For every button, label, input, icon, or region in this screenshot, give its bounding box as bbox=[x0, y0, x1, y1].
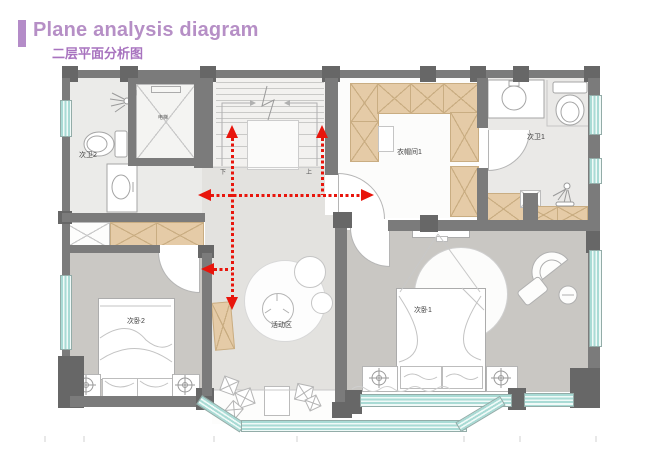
window-left-2 bbox=[60, 275, 72, 350]
window-left-1 bbox=[60, 100, 72, 137]
stair-direction-arrow-right bbox=[250, 100, 256, 106]
wall-column bbox=[420, 66, 436, 82]
flow-line-main-vertical bbox=[231, 138, 234, 298]
wall-bedroom2-bottom bbox=[70, 396, 200, 407]
dimension-ticks bbox=[45, 436, 596, 442]
title-accent-bar bbox=[18, 20, 26, 47]
plant-icons bbox=[220, 376, 321, 419]
wall-hall-bedroom1 bbox=[335, 228, 347, 412]
room-label-activity: 活动区 bbox=[271, 320, 292, 330]
toilet-icon-bath1 bbox=[553, 82, 587, 125]
sink-icon-bath2 bbox=[107, 164, 137, 212]
wall-closet1-bath1-lower bbox=[477, 168, 488, 222]
bedroom1-bed-drapes bbox=[399, 288, 484, 380]
flow-line-branch bbox=[214, 268, 232, 271]
wall-bedroom2-top bbox=[62, 245, 160, 253]
bay-window-bottom bbox=[241, 420, 467, 432]
room-label-bath1: 次卫1 bbox=[527, 132, 545, 142]
wall-corner-br bbox=[570, 368, 600, 408]
room-label-bath2: 次卫2 bbox=[79, 150, 97, 160]
flow-line-horizontal bbox=[211, 194, 361, 197]
room-label-b edroom2: 次卧2 bbox=[127, 316, 145, 326]
window-right-2 bbox=[589, 158, 602, 184]
page-subtitle: 二层平面分析图 bbox=[52, 43, 143, 62]
flow-arrowhead-up-left bbox=[226, 125, 238, 138]
wall-closet1-bath1-upper bbox=[477, 78, 488, 128]
wall-column bbox=[420, 215, 438, 232]
stair-break-line bbox=[262, 86, 274, 120]
stair-label-down: 下 bbox=[220, 167, 226, 176]
room-label-closet1: 衣帽间1 bbox=[397, 147, 422, 157]
wall-closet1-hinge-block bbox=[333, 212, 352, 228]
flow-arrowhead-down bbox=[226, 297, 238, 310]
shower-icon-bath1 bbox=[553, 183, 574, 206]
stair-label-up: 上 bbox=[306, 167, 312, 176]
wall-bath2-bottom bbox=[62, 213, 205, 222]
wall-elevator-bottom bbox=[128, 158, 202, 166]
flow-arrowhead-up-right bbox=[316, 125, 328, 138]
wall-bath1-stub bbox=[523, 193, 538, 223]
flow-arrowhead-left bbox=[198, 189, 211, 201]
wall-elevator-left bbox=[128, 78, 136, 166]
page-title: Plane analysis diagram bbox=[33, 19, 259, 42]
bedroom1-canopy-lines bbox=[400, 234, 480, 292]
elevator-label: 电梯 bbox=[158, 114, 168, 121]
room-label-bedroom1: 次卧1 bbox=[414, 305, 432, 315]
wall-elevator-right bbox=[194, 78, 213, 168]
floor-plan-page: Plane analysis diagram 二层平面分析图 电梯 bbox=[0, 0, 650, 449]
window-right-3 bbox=[589, 250, 602, 347]
flow-line-stair-vertical bbox=[321, 138, 324, 195]
stair-direction-arrow-left bbox=[284, 100, 290, 106]
wall-elevator-top bbox=[128, 78, 202, 84]
flow-arrowhead-branch-left bbox=[201, 263, 214, 275]
activity-table-detail bbox=[265, 294, 289, 313]
window-right-1 bbox=[589, 95, 602, 135]
lounge-chair-icon bbox=[517, 244, 577, 306]
wall-column bbox=[513, 66, 529, 82]
curtain-line bbox=[352, 387, 450, 392]
window-bedroom1-bottom-b bbox=[524, 393, 574, 407]
flow-arrowhead-right bbox=[361, 189, 374, 201]
sink-icon-bath1 bbox=[488, 80, 544, 118]
